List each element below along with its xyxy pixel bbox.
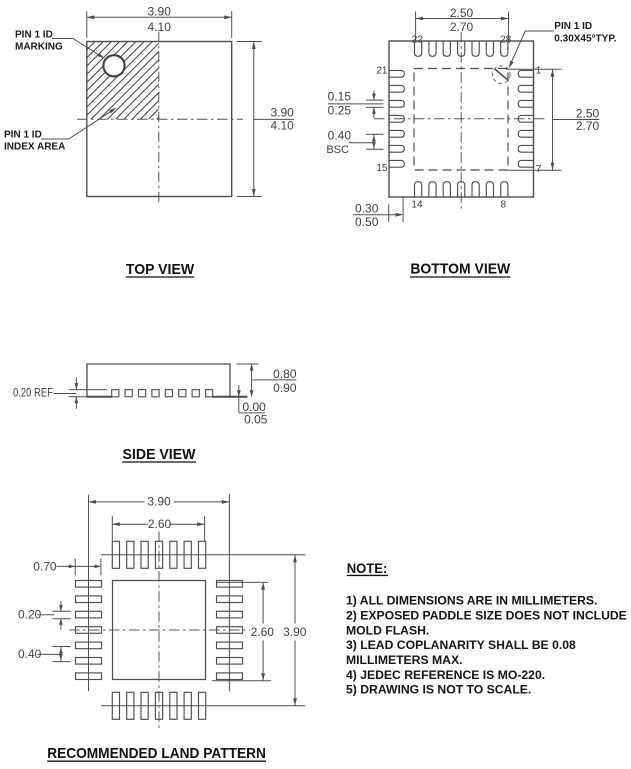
svg-text:14: 14 [411,199,423,210]
svg-text:21: 21 [376,65,388,76]
svg-text:3) LEAD COPLANARITY SHALL BE 0: 3) LEAD COPLANARITY SHALL BE 0.08 [346,638,576,652]
svg-text:22: 22 [412,34,424,45]
svg-text:0.70: 0.70 [33,560,57,574]
svg-text:MOLD FLASH.: MOLD FLASH. [346,623,429,637]
svg-text:3.90: 3.90 [147,495,171,509]
svg-text:0.30: 0.30 [355,202,379,216]
svg-text:2.60: 2.60 [251,625,275,639]
svg-text:0.80: 0.80 [273,367,297,381]
svg-text:NOTE:: NOTE: [347,561,388,576]
svg-text:2.70: 2.70 [576,119,600,133]
svg-text:8: 8 [501,199,507,210]
svg-text:3.90: 3.90 [148,5,172,19]
svg-text:MILLIMETERS MAX.: MILLIMETERS MAX. [346,653,462,667]
svg-text:BOTTOM VIEW: BOTTOM VIEW [410,261,511,278]
svg-text:0.15: 0.15 [328,90,352,104]
svg-text:0.90: 0.90 [273,381,297,395]
svg-text:7: 7 [536,164,542,175]
svg-text:BSC: BSC [326,144,349,156]
svg-text:RECOMMENDED LAND PATTERN: RECOMMENDED LAND PATTERN [47,745,266,762]
svg-text:2.50: 2.50 [450,6,474,20]
svg-text:4.10: 4.10 [148,20,172,34]
svg-text:0.05: 0.05 [244,412,268,426]
svg-text:TOP VIEW: TOP VIEW [126,261,195,278]
svg-text:3.90: 3.90 [270,106,294,120]
svg-text:4) JEDEC REFERENCE IS MO-220.: 4) JEDEC REFERENCE IS MO-220. [346,668,545,682]
svg-text:MARKING: MARKING [15,41,63,52]
svg-text:2.70: 2.70 [450,20,474,34]
svg-text:0.30X45°TYP.: 0.30X45°TYP. [554,34,616,45]
svg-text:5) DRAWING IS NOT TO SCALE.: 5) DRAWING IS NOT TO SCALE. [346,683,531,697]
svg-text:2) EXPOSED PADDLE SIZE DOES NO: 2) EXPOSED PADDLE SIZE DOES NOT INCLUDE [346,609,627,623]
svg-text:0.25: 0.25 [328,104,352,118]
svg-text:PIN 1 ID: PIN 1 ID [4,130,42,141]
svg-text:1: 1 [536,65,542,76]
svg-text:28: 28 [500,34,512,45]
svg-text:1) ALL DIMENSIONS ARE IN MILLI: 1) ALL DIMENSIONS ARE IN MILLIMETERS. [346,594,597,608]
svg-text:0.40: 0.40 [328,129,352,143]
svg-text:INDEX AREA: INDEX AREA [4,142,65,153]
svg-text:0.20 REF: 0.20 REF [13,385,53,399]
svg-text:SIDE VIEW: SIDE VIEW [123,446,197,463]
svg-text:PIN 1 ID: PIN 1 ID [554,21,592,32]
svg-text:4.10: 4.10 [270,119,294,133]
svg-text:0.50: 0.50 [355,215,379,229]
svg-text:PIN 1 ID: PIN 1 ID [15,29,53,40]
svg-text:15: 15 [376,163,388,174]
svg-text:2.60: 2.60 [148,517,172,531]
svg-text:3.90: 3.90 [283,625,307,639]
